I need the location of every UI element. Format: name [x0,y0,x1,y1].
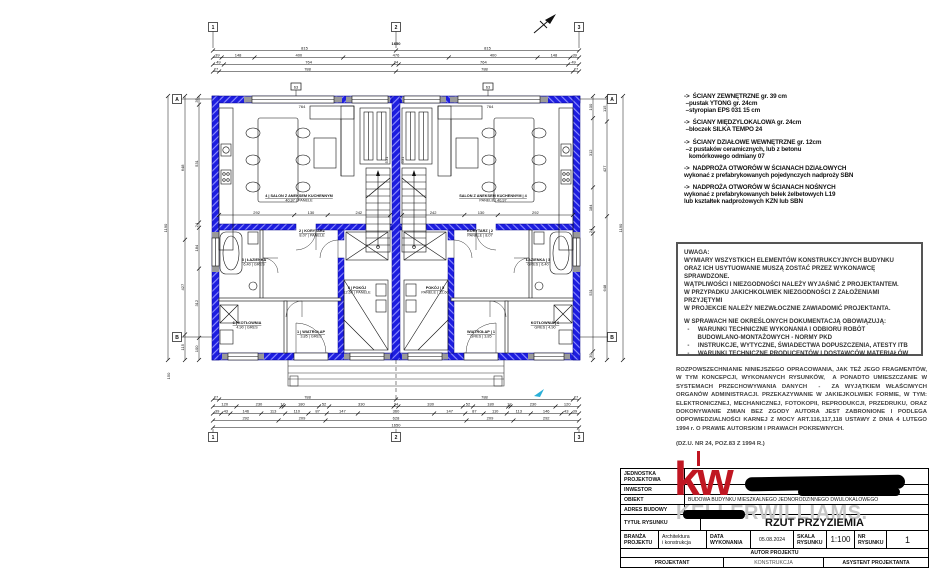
svg-text:531: 531 [194,159,199,166]
text-line: - WARUNKI TECHNICZNE PRODUCENTÓW I DOSTA… [684,350,915,358]
svg-text:B: B [175,335,179,341]
entrance-porch [288,360,504,402]
window-side [212,232,219,272]
svg-text:1: 1 [212,435,215,441]
svg-text:4 | SALON Z ANEKSEM KUCHENNYM: 4 | SALON Z ANEKSEM KUCHENNYM [265,194,333,198]
projektant-label: PROJEKTANT [621,558,724,567]
svg-text:764: 764 [487,104,494,109]
svg-text:4,90 | GRES: 4,90 | GRES [236,326,258,330]
svg-text:230: 230 [530,401,537,406]
svg-text:531: 531 [384,156,389,163]
svg-text:87: 87 [472,408,477,413]
skala-value: 1:100 [827,531,855,548]
svg-text:6 | KOTŁOWNIA: 6 | KOTŁOWNIA [233,321,262,325]
svg-text:39: 39 [215,408,220,413]
svg-text:43: 43 [224,408,229,413]
svg-text:427: 427 [180,283,185,290]
text-line: –bloczek SILKA TEMPO 24 [684,126,912,133]
party-wall [392,96,400,360]
text-line: lub kształtek nadprożowych KZN lub SBN [684,198,912,205]
svg-text:24: 24 [394,401,399,406]
svg-text:330: 330 [427,401,434,406]
svg-text:150: 150 [166,372,171,379]
svg-text:476: 476 [393,52,400,57]
svg-text:27: 27 [574,394,579,399]
svg-text:6,40 | GRES: 6,40 | GRES [243,263,265,267]
svg-text:12,60 | PANELE: 12,60 | PANELE [343,291,371,295]
svg-text:130: 130 [478,210,485,215]
svg-text:2 | KORYTARZ: 2 | KORYTARZ [299,229,326,233]
uwaga-note-box: UWAGA:WYMIARY WSZYSTKICH ELEMENTÓW KONST… [676,242,923,356]
svg-text:40,97 | PANELE: 40,97 | PANELE [285,199,313,203]
copyright-note: ROZPOWSZECHNIANIE NINIEJSZEGO OPRACOWANI… [676,366,927,455]
autor-label: AUTOR PROJEKTU [621,549,928,557]
svg-text:113: 113 [516,408,523,413]
svg-text:147: 147 [446,408,453,413]
svg-text:764: 764 [480,59,487,64]
branza-value: Architektura i konstrukcja [659,531,707,548]
text-line: wykonać z prefabrykowanych belek żelbeto… [684,191,912,198]
svg-text:146: 146 [543,408,550,413]
text-line: WĄTPLIWOŚCI I NIEZGODNOŚCI NALEŻY WYJAŚN… [684,281,915,289]
text-line: UWAGA: [684,249,915,257]
text-line: WYMIARY WSZYSTKICH ELEMENTÓW KONSTRUKCYJ… [684,257,915,265]
svg-text:5 | POKÓJ: 5 | POKÓJ [348,285,367,290]
svg-text:PANELE | 8,07: PANELE | 8,07 [467,234,492,238]
svg-text:GRES | 4,90: GRES | 4,90 [534,326,555,330]
svg-text:292: 292 [242,415,249,420]
svg-text:764: 764 [299,104,306,109]
svg-text:400: 400 [490,52,497,57]
svg-text:148: 148 [551,52,558,57]
svg-text:100: 100 [588,103,593,110]
svg-text:PANELE | 12,60: PANELE | 12,60 [421,291,448,295]
svg-text:427: 427 [602,165,607,172]
svg-text:KOTŁOWNIA | 6: KOTŁOWNIA | 6 [531,321,560,325]
data-value: 05.08.2024 [751,531,794,548]
svg-text:531: 531 [588,288,593,295]
svg-text:815: 815 [301,45,308,50]
svg-text:39: 39 [573,408,578,413]
svg-text:120: 120 [564,401,571,406]
svg-text:312: 312 [588,149,593,156]
svg-text:628: 628 [393,415,400,420]
svg-text:2: 2 [395,435,398,441]
svg-text:1650: 1650 [392,422,402,427]
svg-text:209: 209 [299,415,306,420]
svg-text:27: 27 [214,66,219,71]
svg-text:292: 292 [253,210,260,215]
text-line: -> NADPROŻA OTWORÓW W ŚCIANACH DZIAŁOWYC… [684,165,912,172]
north-arrow-icon [534,14,556,33]
svg-text:788: 788 [304,394,311,399]
svg-text:815: 815 [484,45,491,50]
svg-text:330: 330 [358,401,365,406]
dining-table [246,118,310,202]
redaction-bar [798,488,900,496]
svg-text:292: 292 [532,210,539,215]
text-line: –z pustaków ceramicznych, lub z betonu [684,146,912,153]
svg-text:230: 230 [256,401,263,406]
kw-logo-tick [697,451,700,466]
text-line: -> ŚCIANY MIĘDZYLOKALOWA gr. 24cm [684,119,912,126]
svg-text:A: A [175,97,179,103]
svg-text:788: 788 [481,394,488,399]
svg-text:115: 115 [602,105,607,112]
svg-text:3: 3 [578,25,581,31]
svg-text:39: 39 [572,52,577,57]
coffee-table [314,138,336,168]
text-line: - WARUNKI TECHNICZNE WYKONANIA I ODBIORU… [684,326,915,334]
svg-text:GRES | 6,40: GRES | 6,40 [527,263,548,267]
windows-bottom [222,353,390,360]
text-line: (DZ.U. NR 24, POZ.83 Z 1994 R.) [676,440,927,448]
washbasin [249,282,257,290]
svg-text:1190: 1190 [618,223,623,232]
text-line: –styropian EPS 031 15 cm [684,107,912,114]
konstrukcja-label: KONSTRUKCJA [724,558,824,567]
branza-label: BRANŻA PROJEKTU [621,531,659,548]
svg-text:292: 292 [543,415,550,420]
svg-text:1 | WIATROŁAP: 1 | WIATROŁAP [297,330,325,334]
text-line: ROZPOWSZECHNIANIE NINIEJSZEGO OPRACOWANI… [676,366,927,433]
svg-text:3 | ŁAZIENKA: 3 | ŁAZIENKA [242,258,267,262]
svg-text:115: 115 [180,343,185,350]
svg-text:POKÓJ | 5: POKÓJ | 5 [426,285,445,290]
skala-label: SKALA RYSUNKU [794,531,827,548]
svg-text:1: 1 [212,25,215,31]
text-line: -> ŚCIANY ZEWNĘTRZNE gr. 39 cm [684,93,912,100]
svg-text:39: 39 [194,97,199,102]
text-line: ORAZ ICH USYTUOWANIE MUSZĄ ZOSTAĆ PRZEZ … [684,265,915,281]
kw-logo: kw [674,455,731,502]
svg-text:39: 39 [588,353,593,358]
svg-text:100: 100 [194,345,199,352]
tytul-value: RZUT PRZYZIEMIA [701,515,928,530]
svg-text:360: 360 [393,408,400,413]
svg-text:24: 24 [194,222,199,227]
svg-text:GRES | 3,85: GRES | 3,85 [470,335,491,339]
svg-text:43: 43 [564,408,569,413]
svg-text:764: 764 [305,59,312,64]
text-line: W PROJEKCIE NALEŻY NIEZWŁOCZNIE ZAWIADOM… [684,305,915,313]
svg-text:8,07 | PANELE: 8,07 | PANELE [299,234,325,238]
text-line: -> ŚCIANY DZIAŁOWE WEWNĘTRZNE gr. 12cm [684,139,912,146]
svg-text:180: 180 [487,401,494,406]
svg-text:184: 184 [588,204,593,211]
svg-text:147: 147 [339,408,346,413]
text-line: komórkowego odmiany 07 [684,153,912,160]
svg-text:209: 209 [487,415,494,420]
svg-text:A: A [610,97,614,103]
svg-text:27: 27 [214,394,219,399]
svg-text:KORYTARZ | 2: KORYTARZ | 2 [467,229,493,233]
svg-text:24: 24 [588,228,593,233]
text-line: W PRZYPADKU JAKICHKOLWIEK NIEZGODNOŚCI Z… [684,289,915,305]
svg-text:242: 242 [355,210,362,215]
svg-text:113: 113 [270,408,277,413]
svg-text:531: 531 [400,156,405,163]
text-line: BUDOWLANO-MONTAŻOWYCH - NORMY PKD [684,334,915,342]
svg-text:146: 146 [242,408,249,413]
svg-text:39: 39 [215,52,220,57]
text-line: –pustak YTONG gr. 24cm [684,100,912,107]
svg-text:180: 180 [298,401,305,406]
svg-text:27: 27 [574,66,579,71]
svg-text:400: 400 [295,52,302,57]
svg-text:120: 120 [221,401,228,406]
svg-text:148: 148 [235,52,242,57]
svg-text:184: 184 [194,244,199,251]
toilet [248,232,258,244]
svg-text:63: 63 [486,85,491,90]
wall-legend-notes: -> ŚCIANY ZEWNĘTRZNE gr. 39 cm –pustak Y… [684,93,912,205]
svg-text:52: 52 [322,401,327,406]
level-marker-icon [534,389,544,397]
svg-text:52: 52 [466,401,471,406]
svg-text:1650: 1650 [392,41,402,46]
svg-text:49: 49 [571,59,576,64]
svg-text:110: 110 [492,408,499,413]
nr-value: 1 [887,531,928,548]
svg-text:ŁAZIENKA | 3: ŁAZIENKA | 3 [526,258,550,262]
svg-text:24: 24 [394,59,399,64]
staircase [366,168,390,252]
svg-text:3: 3 [578,435,581,441]
data-label: DATA WYKONANIA [707,531,751,548]
svg-text:648: 648 [602,284,607,291]
svg-text:3,85 | GRES: 3,85 | GRES [300,335,322,339]
nr-label: NR RYSUNKU [855,531,887,548]
windows-top [244,96,390,103]
corner-sofa [310,106,354,176]
svg-text:SALON Z ANEKSEM KUCHENNYM | 4: SALON Z ANEKSEM KUCHENNYM | 4 [459,194,527,198]
svg-text:788: 788 [481,66,488,71]
svg-text:2: 2 [395,25,398,31]
svg-text:242: 242 [430,210,437,215]
drawing-sheet: 8158153914840047640014839497642476449277… [0,0,929,568]
svg-text:788: 788 [304,66,311,71]
tv-cabinet [360,108,390,164]
svg-text:130: 130 [308,210,315,215]
text-line: -> NADPROŻA OTWORÓW W ŚCIANACH NOŚNYCH [684,184,912,191]
svg-text:1190: 1190 [163,223,168,232]
svg-text:B: B [610,335,614,341]
svg-text:87: 87 [315,408,320,413]
text-line: wykonać z prefabrykowanych pojedynczych … [684,172,912,179]
svg-text:WIATROŁAP | 1: WIATROŁAP | 1 [467,330,495,334]
svg-text:63: 63 [294,85,299,90]
svg-text:110: 110 [294,408,301,413]
svg-text:648: 648 [180,164,185,171]
svg-text:PANELE | 40,97: PANELE | 40,97 [479,199,506,203]
asystent-label: ASYSTENT PROJEKTANTA [824,558,928,567]
svg-text:49: 49 [216,59,221,64]
svg-text:312: 312 [194,299,199,306]
